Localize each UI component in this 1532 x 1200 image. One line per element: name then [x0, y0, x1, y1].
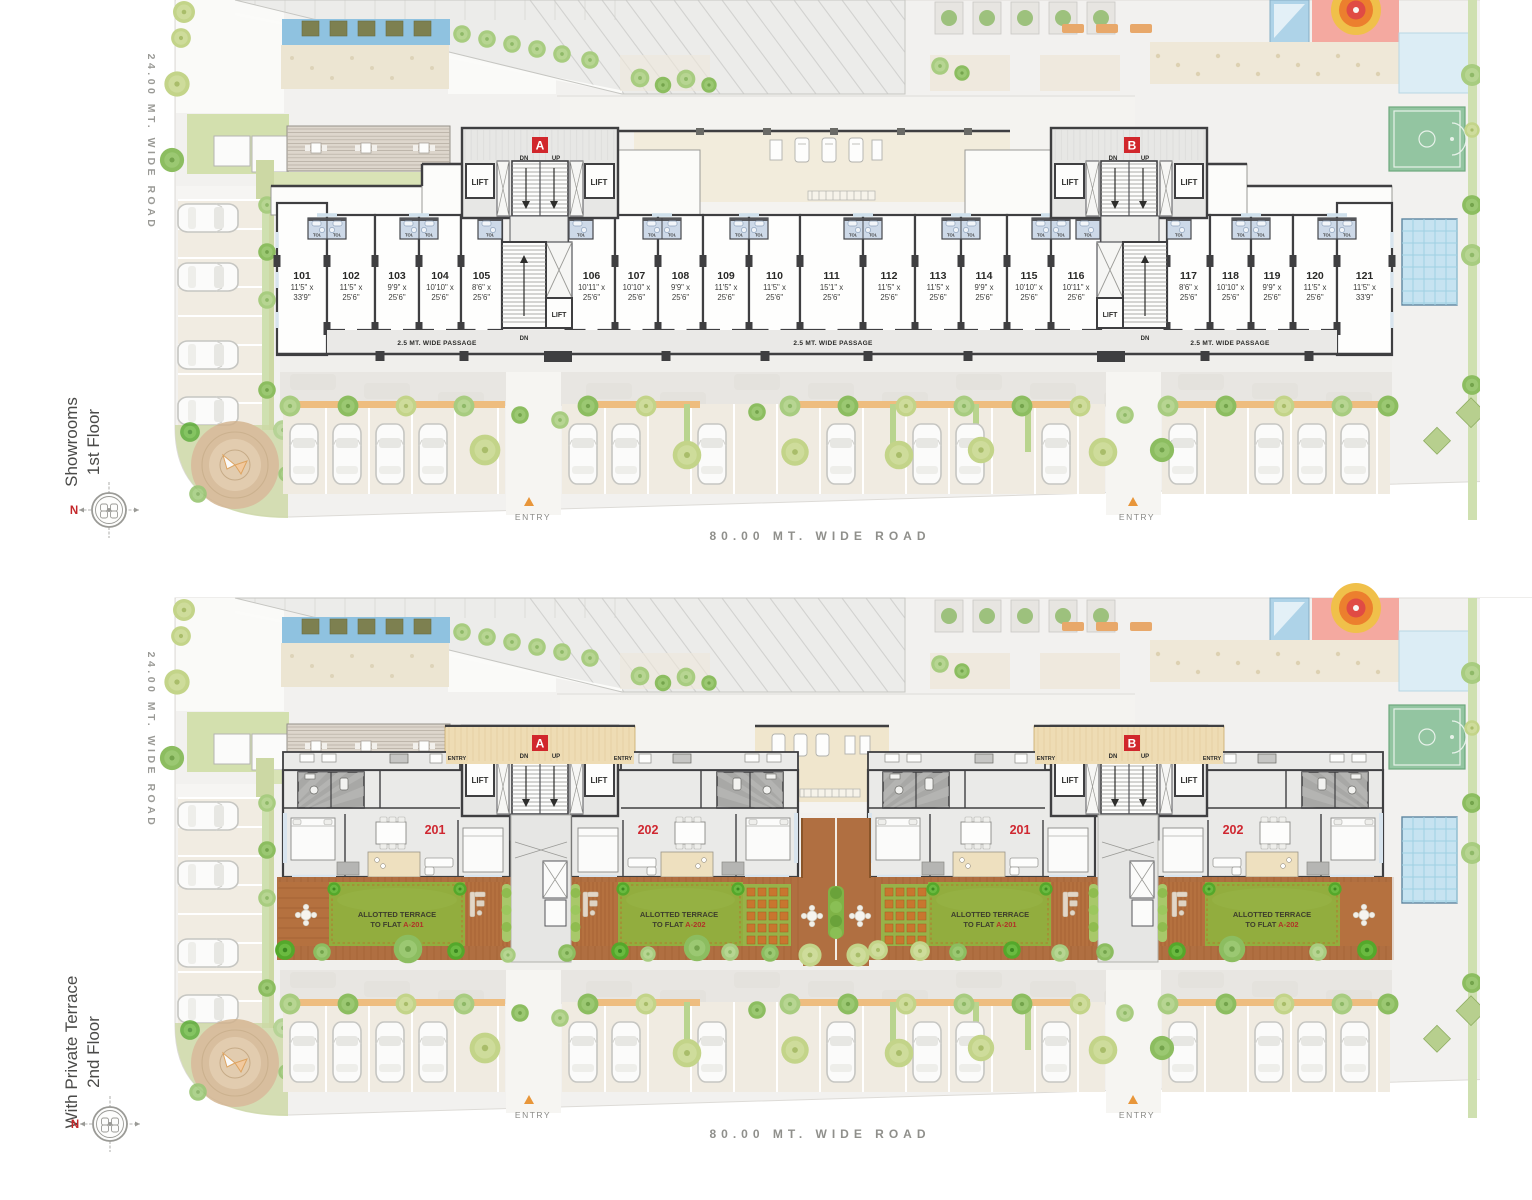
svg-text:N: N — [70, 505, 78, 517]
svg-text:25'6": 25'6" — [717, 293, 734, 302]
svg-text:119: 119 — [1264, 270, 1281, 282]
svg-text:TO FLAT A-201: TO FLAT A-201 — [370, 920, 423, 929]
svg-text:LIFT: LIFT — [1181, 178, 1198, 187]
svg-text:106: 106 — [583, 270, 601, 282]
svg-text:ALLOTTED TERRACE: ALLOTTED TERRACE — [951, 910, 1029, 919]
svg-text:11'5" x: 11'5" x — [1353, 283, 1376, 292]
svg-text:N: N — [71, 1119, 79, 1131]
svg-text:UP: UP — [1141, 754, 1149, 760]
svg-text:A: A — [536, 139, 545, 153]
svg-text:10'10" x: 10'10" x — [1015, 283, 1043, 292]
svg-text:B: B — [1128, 139, 1137, 153]
svg-text:With Private Terrace: With Private Terrace — [62, 976, 81, 1129]
svg-text:25'6": 25'6" — [473, 293, 490, 302]
svg-text:108: 108 — [672, 270, 690, 282]
svg-text:25'6": 25'6" — [1020, 293, 1037, 302]
svg-text:25'6": 25'6" — [1222, 293, 1239, 302]
svg-text:LIFT: LIFT — [472, 178, 489, 187]
svg-text:1st Floor: 1st Floor — [84, 409, 103, 475]
svg-text:LIFT: LIFT — [591, 776, 608, 785]
svg-text:107: 107 — [628, 270, 646, 282]
svg-text:25'6": 25'6" — [880, 293, 897, 302]
svg-text:DN: DN — [520, 336, 529, 342]
svg-text:10'10" x: 10'10" x — [1217, 283, 1245, 292]
svg-text:25'6": 25'6" — [1306, 293, 1323, 302]
svg-text:TO FLAT A-201: TO FLAT A-201 — [963, 920, 1016, 929]
svg-text:8'6" x: 8'6" x — [1179, 283, 1198, 292]
svg-text:15'1" x: 15'1" x — [820, 283, 843, 292]
svg-text:2.5 MT. WIDE PASSAGE: 2.5 MT. WIDE PASSAGE — [793, 340, 873, 347]
svg-text:25'6": 25'6" — [342, 293, 359, 302]
svg-text:25'6": 25'6" — [1067, 293, 1084, 302]
svg-text:11'5" x: 11'5" x — [878, 283, 901, 292]
svg-text:25'6": 25'6" — [766, 293, 783, 302]
svg-text:120: 120 — [1306, 270, 1324, 282]
svg-text:11'5" x: 11'5" x — [340, 283, 363, 292]
svg-text:11'5" x: 11'5" x — [291, 283, 314, 292]
svg-text:9'9" x: 9'9" x — [388, 283, 407, 292]
svg-text:LIFT: LIFT — [1103, 312, 1118, 319]
svg-text:ENTRY: ENTRY — [614, 756, 633, 762]
svg-text:25'6": 25'6" — [1180, 293, 1197, 302]
svg-text:11'5" x: 11'5" x — [715, 283, 738, 292]
svg-text:101: 101 — [293, 270, 311, 282]
svg-text:ALLOTTED TERRACE: ALLOTTED TERRACE — [358, 910, 436, 919]
svg-text:ALLOTTED TERRACE: ALLOTTED TERRACE — [640, 910, 718, 919]
svg-text:10'10" x: 10'10" x — [623, 283, 651, 292]
svg-text:2nd Floor: 2nd Floor — [84, 1016, 103, 1088]
svg-text:LIFT: LIFT — [552, 312, 567, 319]
svg-text:201: 201 — [425, 823, 446, 837]
svg-text:2.5 MT. WIDE PASSAGE: 2.5 MT. WIDE PASSAGE — [397, 340, 477, 347]
svg-text:104: 104 — [431, 270, 449, 282]
svg-text:103: 103 — [388, 270, 406, 282]
svg-text:25'6": 25'6" — [929, 293, 946, 302]
svg-text:A: A — [536, 737, 545, 751]
svg-text:ENTRY: ENTRY — [448, 756, 467, 762]
svg-text:25'6": 25'6" — [823, 293, 840, 302]
svg-text:202: 202 — [1223, 823, 1244, 837]
svg-text:ALLOTTED TERRACE: ALLOTTED TERRACE — [1233, 910, 1311, 919]
svg-text:10'11" x: 10'11" x — [1062, 283, 1089, 292]
svg-text:DN: DN — [1109, 754, 1118, 760]
svg-text:LIFT: LIFT — [1181, 776, 1198, 785]
svg-text:25'6": 25'6" — [388, 293, 405, 302]
svg-text:25'6": 25'6" — [1263, 293, 1280, 302]
svg-text:116: 116 — [1068, 270, 1085, 282]
svg-text:8'6" x: 8'6" x — [472, 283, 491, 292]
svg-text:2.5 MT. WIDE PASSAGE: 2.5 MT. WIDE PASSAGE — [1190, 340, 1270, 347]
svg-text:113: 113 — [930, 270, 947, 282]
svg-text:33'9": 33'9" — [1356, 293, 1373, 302]
svg-text:109: 109 — [717, 270, 735, 282]
svg-text:25'6": 25'6" — [672, 293, 689, 302]
svg-text:DN: DN — [1141, 336, 1150, 342]
svg-text:33'9": 33'9" — [293, 293, 310, 302]
svg-text:UP: UP — [1141, 156, 1149, 162]
svg-text:10'10" x: 10'10" x — [426, 283, 454, 292]
svg-text:111: 111 — [823, 270, 840, 282]
svg-text:LIFT: LIFT — [1062, 178, 1079, 187]
svg-text:9'9" x: 9'9" x — [1263, 283, 1282, 292]
svg-text:11'5" x: 11'5" x — [763, 283, 786, 292]
svg-text:DN: DN — [520, 156, 529, 162]
svg-text:25'6": 25'6" — [975, 293, 992, 302]
svg-text:102: 102 — [342, 270, 360, 282]
svg-text:112: 112 — [881, 270, 898, 282]
svg-text:9'9" x: 9'9" x — [671, 283, 690, 292]
svg-text:ENTRY: ENTRY — [1203, 756, 1222, 762]
svg-text:25'6": 25'6" — [431, 293, 448, 302]
svg-text:B: B — [1128, 737, 1137, 751]
svg-text:118: 118 — [1222, 270, 1239, 282]
svg-text:121: 121 — [1356, 270, 1374, 282]
svg-text:11'5" x: 11'5" x — [927, 283, 950, 292]
svg-text:ENTRY: ENTRY — [1037, 756, 1056, 762]
svg-text:TO FLAT A-202: TO FLAT A-202 — [652, 920, 705, 929]
svg-text:25'6": 25'6" — [583, 293, 600, 302]
svg-text:11'5" x: 11'5" x — [1304, 283, 1327, 292]
svg-text:DN: DN — [1109, 156, 1118, 162]
svg-text:UP: UP — [552, 754, 560, 760]
svg-text:25'6": 25'6" — [628, 293, 645, 302]
svg-text:115: 115 — [1021, 270, 1038, 282]
svg-text:LIFT: LIFT — [1062, 776, 1079, 785]
svg-text:LIFT: LIFT — [591, 178, 608, 187]
svg-text:110: 110 — [766, 270, 783, 282]
svg-text:105: 105 — [473, 270, 491, 282]
svg-text:114: 114 — [976, 270, 993, 282]
svg-text:9'9" x: 9'9" x — [975, 283, 994, 292]
svg-text:201: 201 — [1010, 823, 1031, 837]
svg-text:117: 117 — [1180, 270, 1197, 282]
svg-text:TO FLAT A-202: TO FLAT A-202 — [1245, 920, 1298, 929]
svg-text:UP: UP — [552, 156, 560, 162]
svg-text:DN: DN — [520, 754, 529, 760]
svg-text:LIFT: LIFT — [472, 776, 489, 785]
svg-text:Showrooms: Showrooms — [62, 397, 81, 487]
svg-text:202: 202 — [638, 823, 659, 837]
svg-text:10'11" x: 10'11" x — [578, 283, 605, 292]
